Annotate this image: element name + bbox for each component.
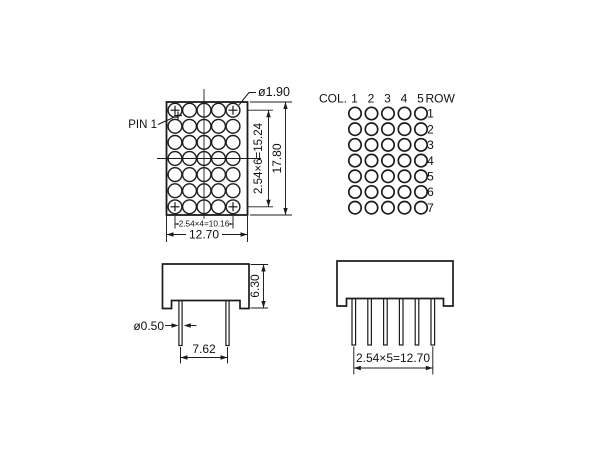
component-pin <box>384 299 388 346</box>
led-dot <box>365 154 377 166</box>
pin-diameter-text: ø0.50 <box>133 319 164 333</box>
side-body-outline <box>163 264 250 309</box>
led-dot <box>349 107 361 119</box>
row-number: 5 <box>427 170 434 184</box>
led-dot <box>183 136 197 150</box>
led-dot <box>168 136 182 150</box>
dim-row-span-text: 2.54×6=15.24 <box>253 122 265 194</box>
led-dot <box>212 200 226 214</box>
component-pin <box>179 301 182 346</box>
led-dot <box>349 123 361 135</box>
led-dot <box>226 119 240 133</box>
component-pin <box>352 299 356 346</box>
led-dot <box>168 184 182 198</box>
row-header-label: ROW <box>426 92 456 106</box>
row-number: 6 <box>427 185 434 199</box>
led-dot <box>365 123 377 135</box>
led-dot <box>398 154 410 166</box>
led-dot <box>415 202 427 214</box>
bottom-view: 2.54×5=12.70 <box>337 261 453 375</box>
col-number: 4 <box>401 92 408 106</box>
dim-width-text: 12.70 <box>189 228 219 242</box>
led-dot <box>382 107 394 119</box>
component-pin <box>399 299 403 346</box>
dimension-pin-pitch: 7.62 <box>181 342 228 364</box>
led-dot <box>365 107 377 119</box>
led-dot <box>349 139 361 151</box>
dimension-pin-diameter: ø0.50 <box>133 319 196 333</box>
led-dot <box>398 170 410 182</box>
led-dot <box>415 107 427 119</box>
row-number: 1 <box>427 107 434 121</box>
led-dot <box>349 202 361 214</box>
led-dot <box>365 139 377 151</box>
dimension-body-height: 6.30 <box>248 265 268 309</box>
led-dot <box>212 136 226 150</box>
technical-drawing: PIN 1 ø1.90 2.54×6=15.24 <box>0 0 600 450</box>
led-dot <box>398 107 410 119</box>
col-header-label: COL. <box>319 92 347 106</box>
bottom-body-outline <box>337 261 453 306</box>
led-dot <box>183 184 197 198</box>
led-dot <box>226 136 240 150</box>
led-dot <box>382 170 394 182</box>
row-number: 3 <box>427 138 434 152</box>
led-dot <box>398 186 410 198</box>
col-number: 1 <box>351 92 358 106</box>
front-view: PIN 1 ø1.90 2.54×6=15.24 <box>128 85 292 242</box>
led-dot <box>183 168 197 182</box>
led-dot <box>398 139 410 151</box>
led-dot <box>382 123 394 135</box>
led-dot <box>365 202 377 214</box>
led-dot <box>212 103 226 117</box>
led-dot <box>183 119 197 133</box>
led-dot <box>168 119 182 133</box>
led-dot <box>349 170 361 182</box>
col-number: 5 <box>417 92 424 106</box>
dim-body-height-text: 6.30 <box>248 274 262 298</box>
led-dot <box>365 170 377 182</box>
row-number: 4 <box>427 154 434 168</box>
dimension-pin-span: 2.54×5=12.70 <box>354 347 433 375</box>
led-dot <box>226 184 240 198</box>
led-dot <box>398 202 410 214</box>
pinout-dot-grid <box>349 107 427 214</box>
led-dot <box>226 168 240 182</box>
dot-diameter-label: ø1.90 <box>258 85 290 99</box>
led-dot <box>365 186 377 198</box>
led-dot <box>415 154 427 166</box>
led-dot <box>349 154 361 166</box>
col-number: 2 <box>368 92 375 106</box>
led-dot <box>212 184 226 198</box>
led-dot <box>382 186 394 198</box>
led-dot <box>183 200 197 214</box>
led-dot <box>212 168 226 182</box>
dim-height-text: 17.80 <box>270 143 284 173</box>
led-dot <box>382 139 394 151</box>
pin1-label: PIN 1 <box>128 119 157 131</box>
led-dot <box>183 103 197 117</box>
component-pin <box>368 299 372 346</box>
led-dot <box>415 170 427 182</box>
led-dot <box>382 154 394 166</box>
component-pin <box>431 299 435 346</box>
led-dot <box>415 139 427 151</box>
led-dot <box>415 123 427 135</box>
component-pin <box>226 301 229 346</box>
row-number: 7 <box>427 201 434 215</box>
side-view: 6.30 ø0.50 7.62 <box>133 264 268 364</box>
col-number: 3 <box>384 92 391 106</box>
row-number: 2 <box>427 122 434 136</box>
dim-pin-pitch-text: 7.62 <box>192 342 216 356</box>
dim-pin-span-text: 2.54×5=12.70 <box>356 351 430 365</box>
pinout-view: COL. 1 2 3 4 5 ROW 1 2 3 4 5 6 7 <box>319 92 456 215</box>
led-dot <box>382 202 394 214</box>
led-dot <box>168 168 182 182</box>
led-dot <box>212 119 226 133</box>
datasheet-page: PIN 1 ø1.90 2.54×6=15.24 <box>0 0 600 450</box>
component-pin <box>415 299 419 346</box>
led-dot <box>349 186 361 198</box>
led-dot <box>398 123 410 135</box>
led-dot <box>415 186 427 198</box>
